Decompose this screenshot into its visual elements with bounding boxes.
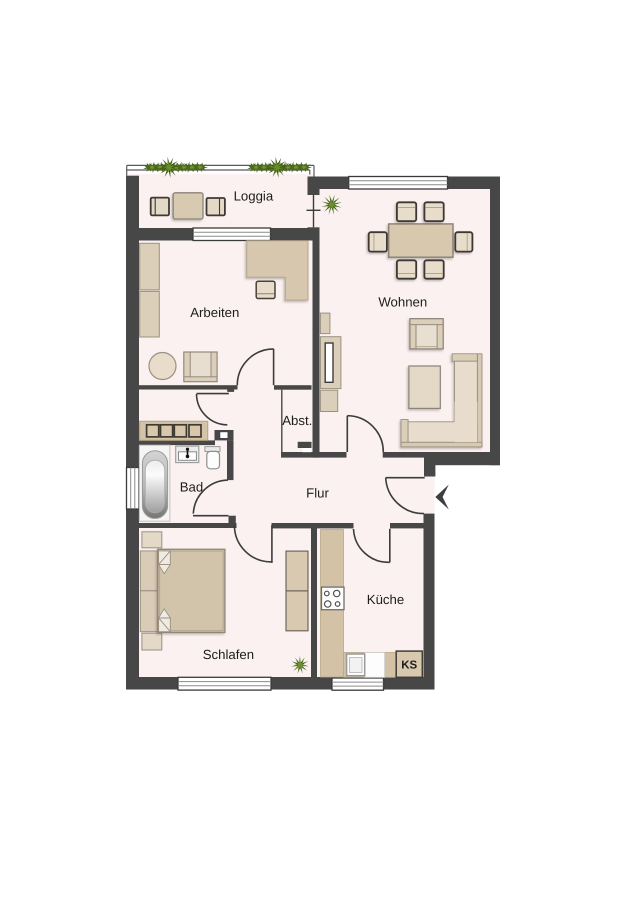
svg-text:Küche: Küche	[367, 592, 404, 607]
svg-text:Loggia: Loggia	[234, 188, 274, 203]
svg-text:Flur: Flur	[306, 486, 329, 501]
svg-text:Schlafen: Schlafen	[203, 647, 254, 662]
svg-text:Abst.: Abst.	[282, 413, 312, 428]
svg-text:Bad: Bad	[180, 479, 203, 494]
svg-text:Arbeiten: Arbeiten	[190, 305, 239, 320]
svg-text:KS: KS	[401, 660, 417, 672]
svg-text:Wohnen: Wohnen	[378, 294, 427, 309]
